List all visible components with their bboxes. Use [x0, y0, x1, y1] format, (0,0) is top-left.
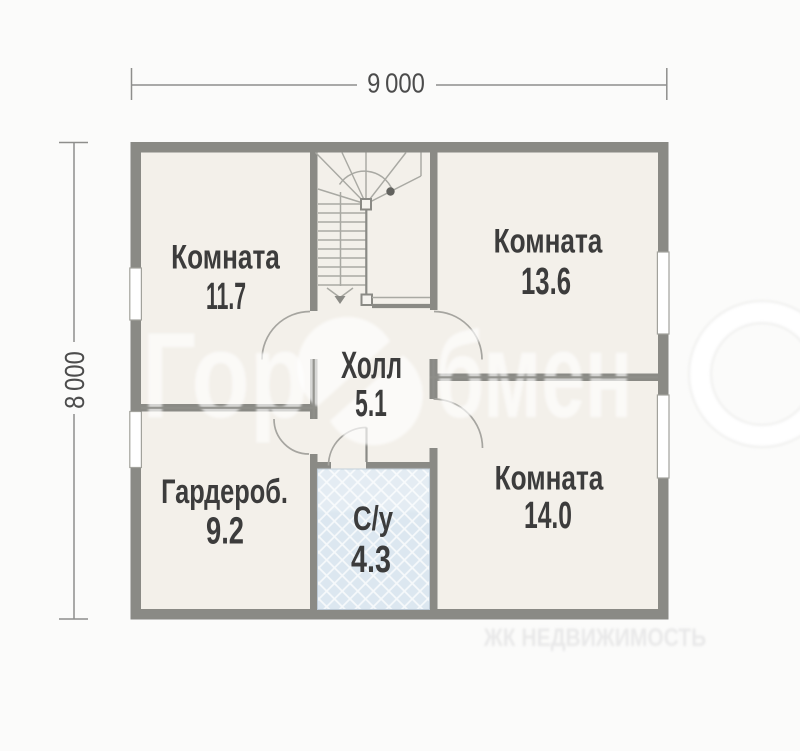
svg-text:Комната: Комната [171, 239, 281, 276]
svg-text:ЖК НЕДВИЖИМОСТЬ: ЖК НЕДВИЖИМОСТЬ [483, 623, 706, 651]
svg-text:4.3: 4.3 [351, 538, 391, 581]
svg-text:5.1: 5.1 [355, 382, 387, 424]
svg-text:11.7: 11.7 [206, 274, 246, 317]
svg-text:Холл: Холл [341, 343, 402, 386]
svg-text:Комната: Комната [495, 460, 605, 497]
svg-text:9 000: 9 000 [367, 67, 425, 99]
svg-text:С/у: С/у [353, 501, 393, 538]
svg-text:Гор: Гор [142, 308, 308, 444]
svg-text:9.2: 9.2 [206, 510, 244, 552]
svg-text:Гардероб.: Гардероб. [161, 474, 288, 511]
svg-text:14.0: 14.0 [524, 494, 572, 537]
svg-text:13.6: 13.6 [521, 260, 571, 302]
svg-text:8 000: 8 000 [58, 351, 90, 409]
svg-text:бмен: бмен [436, 306, 633, 443]
svg-text:Комната: Комната [494, 223, 604, 260]
